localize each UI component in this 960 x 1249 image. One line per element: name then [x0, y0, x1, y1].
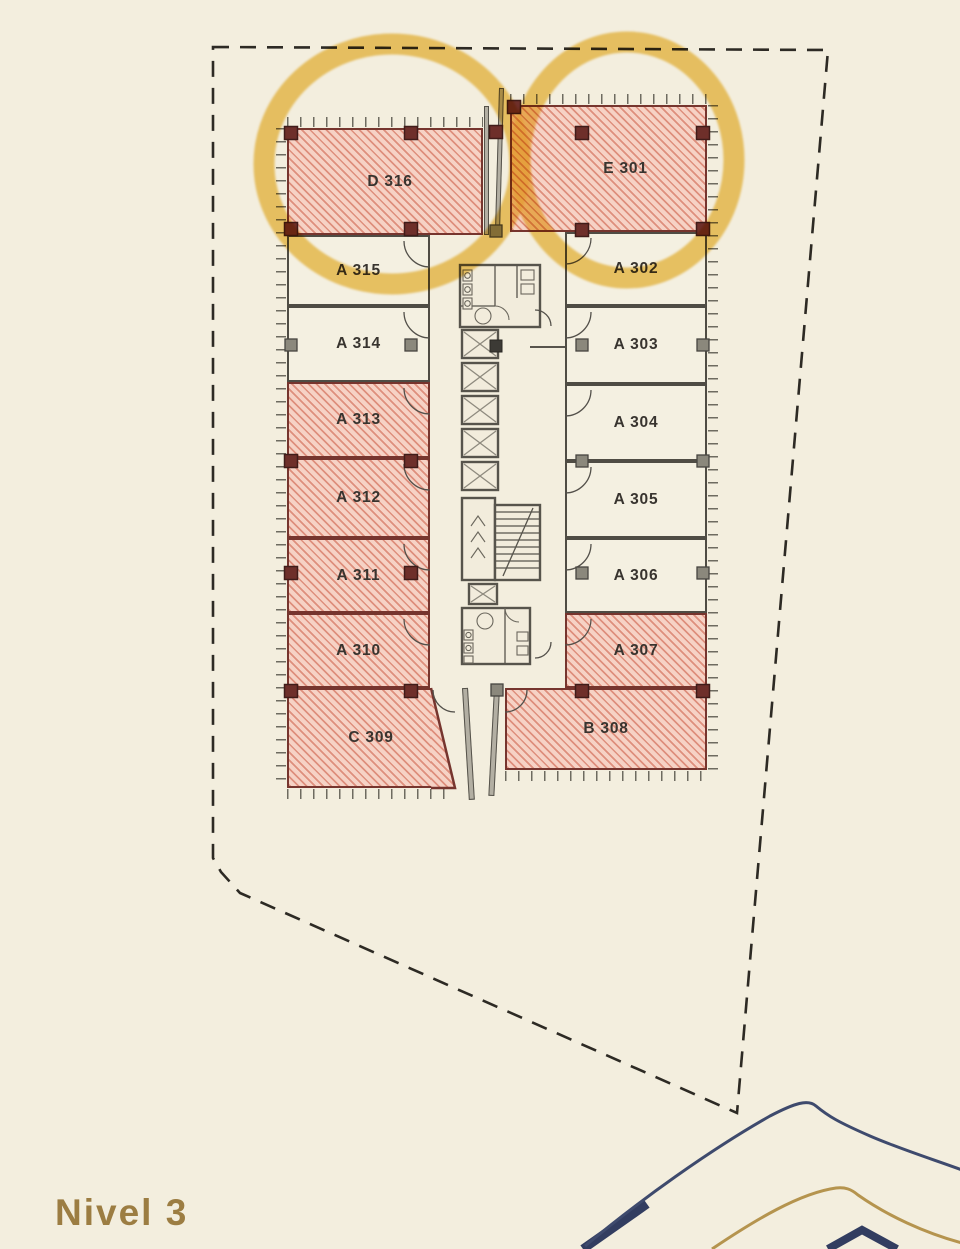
level-title: Nivel 3 [55, 1192, 188, 1234]
circle-highlight-e301 [520, 42, 734, 278]
circle-highlight-d316 [264, 44, 520, 284]
floorplan-page: D 316 E 301 A 315 A 314 A 313 A 312 A 31… [0, 0, 960, 1249]
highlight-rings [0, 0, 960, 1249]
